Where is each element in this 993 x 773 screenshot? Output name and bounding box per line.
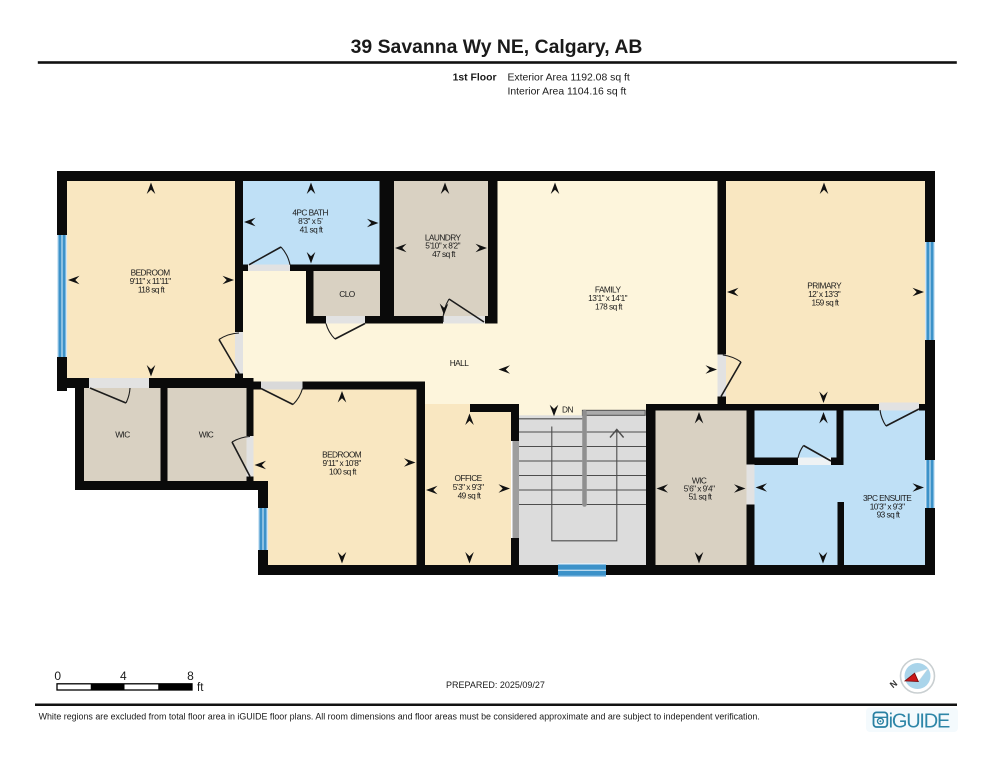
svg-text:PREPARED: 2025/09/27: PREPARED: 2025/09/27 — [446, 680, 545, 690]
svg-text:ft: ft — [197, 682, 204, 694]
svg-text:39 Savanna Wy NE, Calgary, AB: 39 Savanna Wy NE, Calgary, AB — [351, 36, 643, 58]
svg-text:WIC: WIC — [199, 430, 214, 440]
svg-text:DN: DN — [562, 405, 573, 415]
svg-text:1st Floor: 1st Floor — [453, 73, 497, 84]
svg-text:iGUIDE: iGUIDE — [889, 710, 950, 732]
svg-text:CLO: CLO — [339, 289, 356, 299]
svg-text:Interior Area 1104.16 sq ft: Interior Area 1104.16 sq ft — [508, 87, 627, 98]
svg-text:PRIMARY 12’ x 13’3" 159 sq ft: PRIMARY 12’ x 13’3" 159 sq ft — [807, 281, 842, 308]
svg-text:4: 4 — [120, 669, 127, 683]
svg-text:OFFICE 5’3" x 9’3" 49 sq ft: OFFICE 5’3" x 9’3" 49 sq ft — [453, 473, 486, 500]
svg-text:8: 8 — [187, 669, 194, 683]
svg-text:White regions are excluded fro: White regions are excluded from total fl… — [39, 712, 760, 722]
svg-text:HALL: HALL — [450, 358, 469, 368]
svg-text:WIC: WIC — [115, 430, 130, 440]
svg-text:Exterior Area 1192.08 sq ft: Exterior Area 1192.08 sq ft — [508, 73, 630, 84]
svg-text:0: 0 — [54, 669, 61, 683]
